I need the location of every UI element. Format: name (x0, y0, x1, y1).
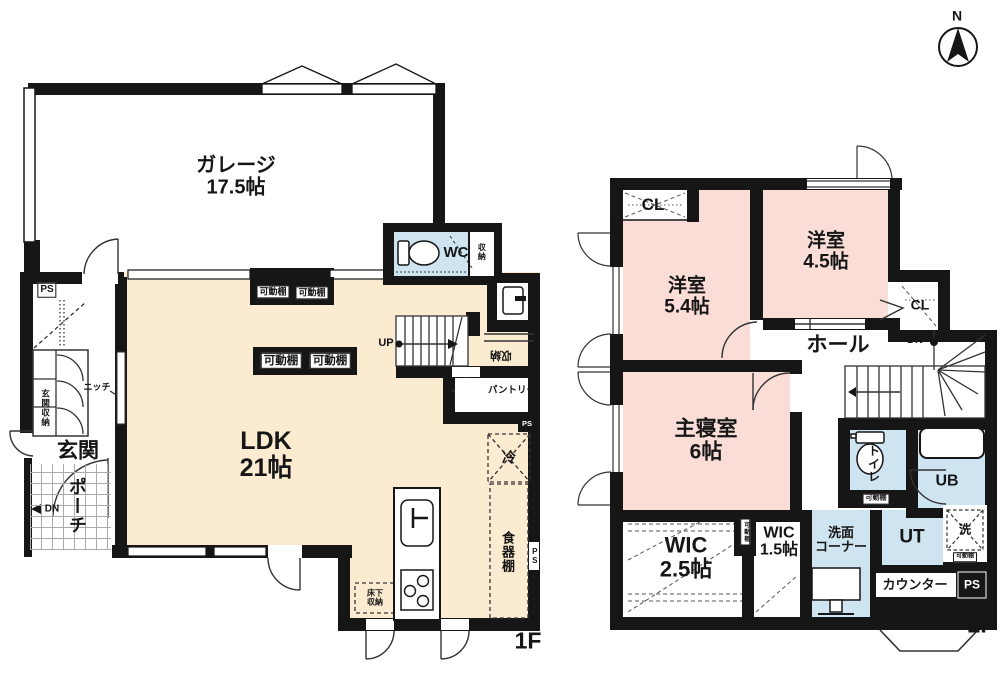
ps-2f-label: PS (964, 579, 980, 592)
toilet-label: トイレ (867, 445, 880, 484)
porch-label: ポーチ (66, 478, 85, 535)
floorplan-page: ガレージ17.5帖 LDK21帖 WC 収納 PS 玄関収納 ニッチ 玄関 ポー… (0, 0, 1007, 681)
ldk-label: LDK21帖 (240, 428, 293, 482)
bathtub-icon (920, 428, 984, 458)
kitchen-island (394, 488, 440, 620)
shelf-label-2: 可動棚 (295, 286, 328, 299)
floor-storage-label: 床下収納 (367, 589, 383, 606)
wc-label: WC (444, 245, 469, 261)
shelf-label-1: 可動棚 (256, 285, 289, 298)
up-label: UP (378, 338, 393, 350)
cl-left-label: CL (642, 196, 665, 214)
toilet-shelf-label: 可動棚 (863, 494, 890, 505)
ps-mid-label: PS (522, 420, 532, 428)
cl-right-label: CL (911, 297, 930, 312)
stairs-1f (396, 316, 469, 366)
porch-dn-label: DN (45, 505, 59, 516)
hall-label: ホール (807, 335, 870, 358)
wic-shelf-label: 可動棚 (740, 519, 750, 546)
laundry-shelf-label: 可動棚 (953, 552, 977, 562)
laundry-label: 洗 (959, 524, 971, 537)
garage-label: ガレージ17.5帖 (196, 155, 276, 198)
washroom-corner-label: 洗面コーナー (815, 526, 867, 554)
master-bedroom-label: 主寝室6帖 (675, 418, 738, 463)
cupboard-label: 食器棚 (500, 531, 514, 573)
bay-window (880, 630, 978, 651)
wic-25-label: WIC2.5帖 (660, 533, 713, 581)
dn-label: DN (907, 335, 923, 347)
ps-right-label: PS (530, 547, 539, 565)
ut-label: UT (899, 528, 924, 549)
pantry-label: パントリー (488, 386, 536, 396)
garage-left-wall (24, 88, 35, 242)
compass-north-label: N (952, 8, 962, 23)
shelf-label-3: 可動棚 (261, 353, 302, 369)
stairs-storage-label: 収納 (490, 348, 512, 360)
ps-top-label: PS (37, 283, 56, 298)
niche-recess (117, 352, 125, 424)
toilet-icon-1f (398, 241, 439, 265)
wic-15-label: WIC1.5帖 (760, 525, 798, 560)
fridge-label: 冷 (502, 450, 516, 465)
counter-label: カウンター (882, 578, 947, 592)
niche-label: ニッチ (83, 383, 110, 393)
wc-storage-label: 収納 (477, 243, 486, 261)
shelf-label-4: 可動棚 (310, 353, 351, 369)
room-45-label: 洋室4.5帖 (803, 231, 848, 272)
room-54-label: 洋室5.4帖 (664, 276, 709, 317)
floor1-title: 1F (515, 629, 542, 654)
entrance-storage-label: 玄関収納 (40, 389, 49, 427)
entrance-label: 玄関 (57, 441, 99, 464)
handwash-nook (497, 283, 528, 320)
north-arrow-icon (939, 28, 977, 66)
floor2-title: 2F (968, 613, 995, 638)
ub-label: UB (935, 472, 958, 489)
